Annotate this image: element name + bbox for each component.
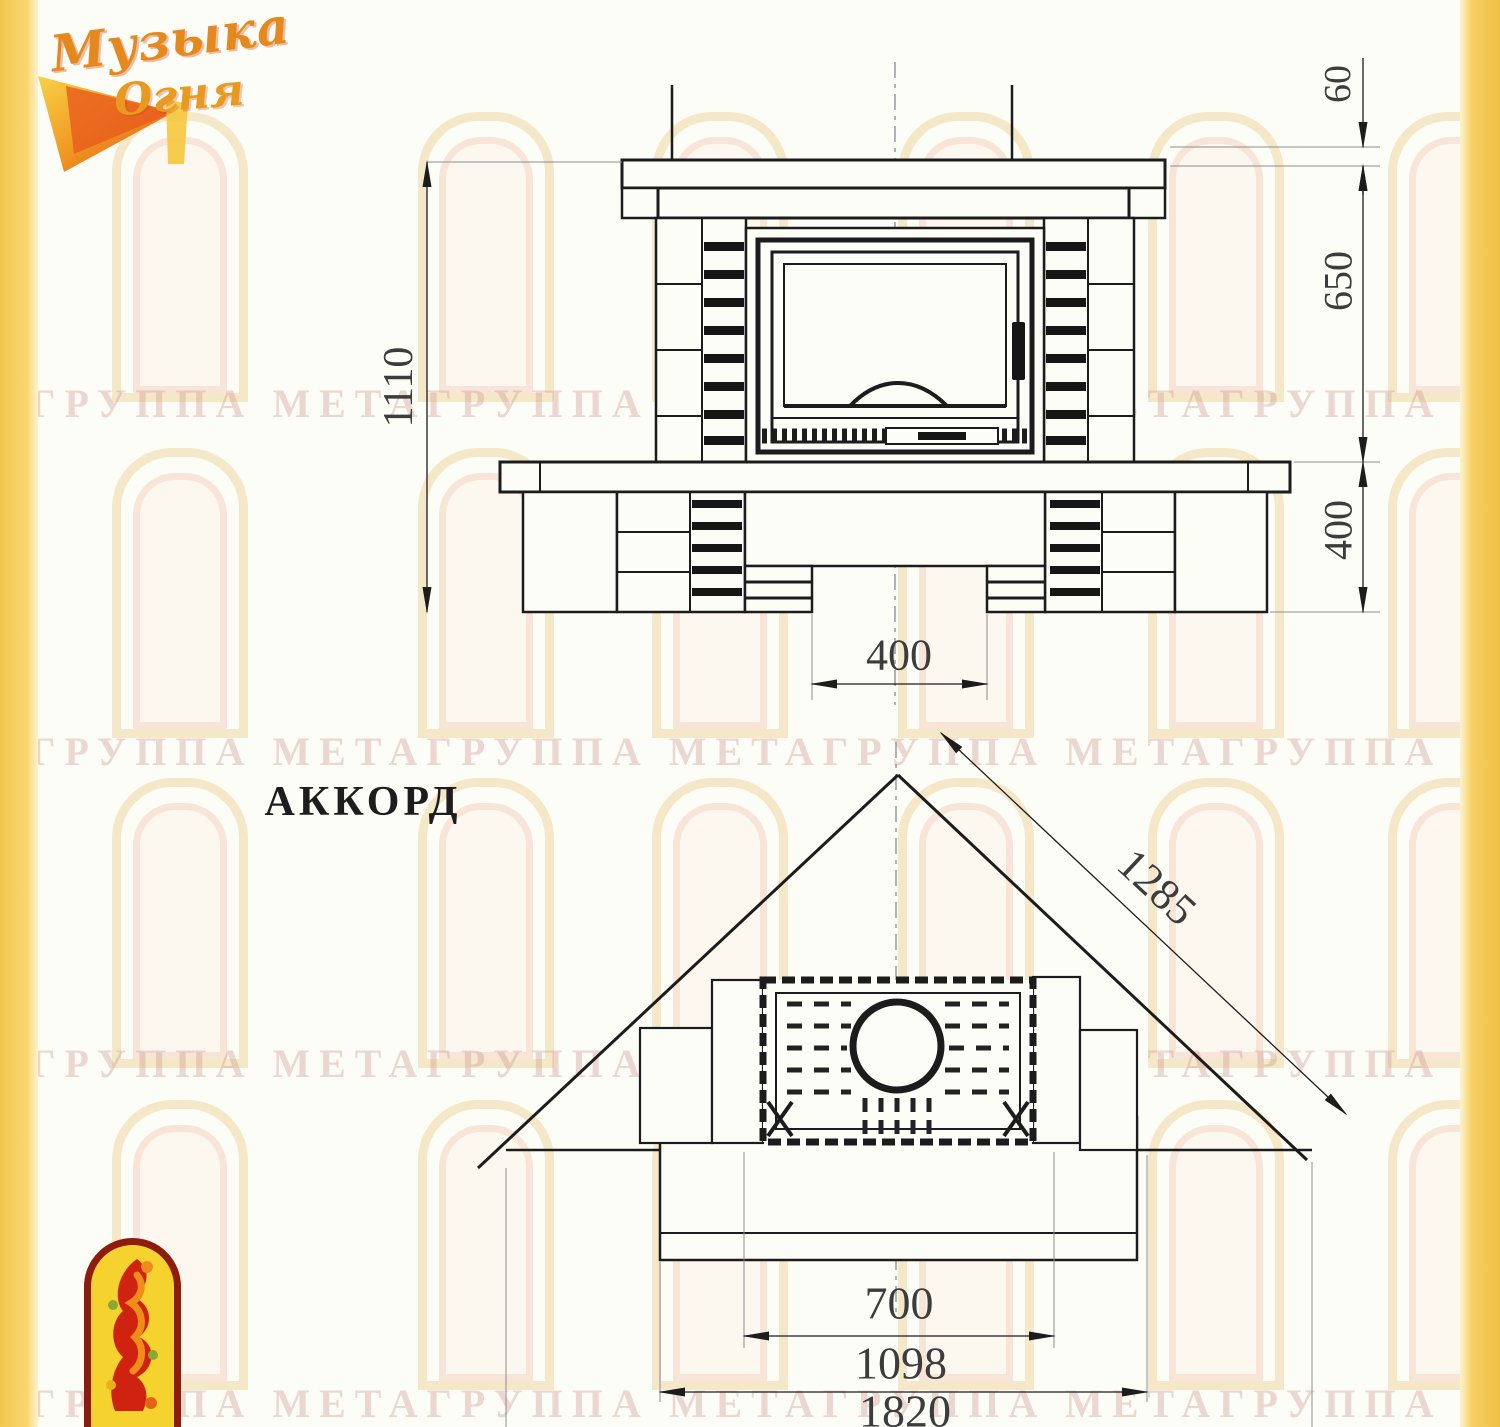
page-canvas: ГРУППА МЕТАГРУППА МЕТАГРУППА МЕТАГРУППА … bbox=[0, 0, 1500, 1427]
model-name: АККОРД bbox=[265, 778, 462, 826]
left-column bbox=[656, 218, 746, 462]
dim-label-650: 650 bbox=[1315, 251, 1362, 311]
dim-label-400-right: 400 bbox=[1315, 500, 1362, 560]
mantel-shelf bbox=[622, 160, 1165, 188]
front-view bbox=[500, 62, 1290, 705]
dim-label-700: 700 bbox=[865, 1277, 934, 1330]
dim-label-1098: 1098 bbox=[855, 1337, 947, 1390]
dim-label-400-bottom: 400 bbox=[866, 630, 932, 681]
hearth-shelf bbox=[500, 462, 1290, 492]
dim-label-60: 60 bbox=[1316, 65, 1360, 103]
brand-logo: Музыка Огня bbox=[16, 4, 296, 174]
firebox-front bbox=[746, 228, 1044, 462]
right-column bbox=[1044, 218, 1134, 462]
plan-view bbox=[478, 733, 1346, 1315]
dim-label-1110: 1110 bbox=[375, 347, 423, 428]
firebox-plan bbox=[763, 980, 1033, 1142]
fireplace-technical-drawing bbox=[0, 0, 1500, 1427]
base bbox=[523, 492, 1267, 612]
dim-label-1820: 1820 bbox=[859, 1385, 951, 1427]
door-handle bbox=[1012, 322, 1025, 380]
firebird-emblem bbox=[84, 1238, 181, 1427]
firebird-figure bbox=[91, 1245, 175, 1427]
